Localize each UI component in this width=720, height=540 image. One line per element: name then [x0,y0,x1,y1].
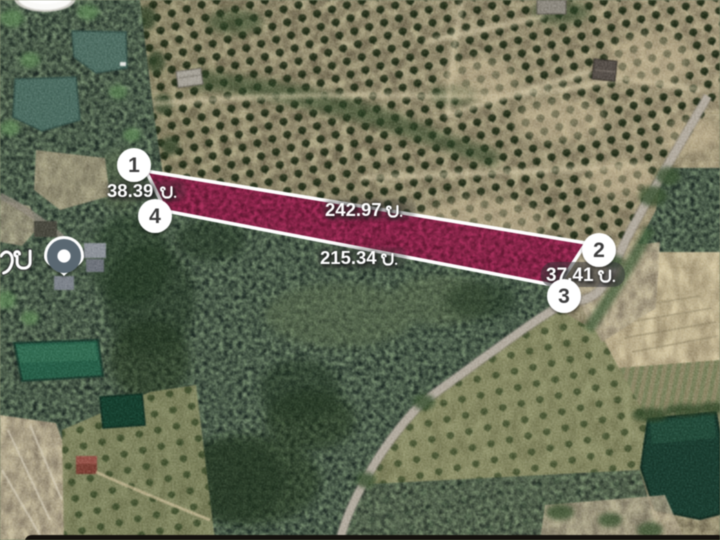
svg-text:215.34: 215.34 [320,247,377,268]
svg-text:4: 4 [149,205,161,228]
svg-text:1: 1 [128,154,140,177]
svg-text:38.39: 38.39 [107,180,153,201]
svg-text:242.97: 242.97 [325,199,382,220]
svg-text:3: 3 [558,285,570,308]
svg-text:2: 2 [593,239,605,262]
